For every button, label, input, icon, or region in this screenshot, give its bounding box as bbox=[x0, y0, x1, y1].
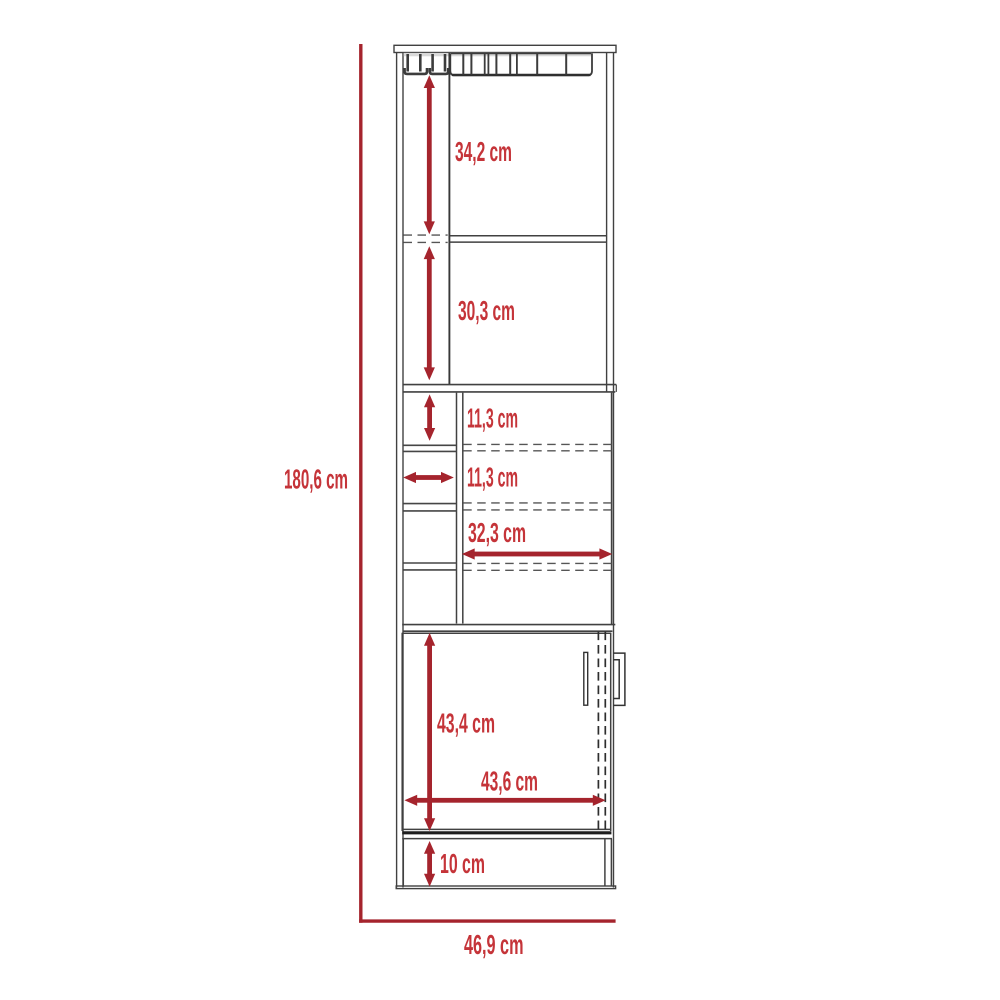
svg-text:32,3 cm: 32,3 cm bbox=[468, 517, 526, 548]
svg-text:43,6 cm: 43,6 cm bbox=[481, 766, 538, 797]
svg-text:43,4 cm: 43,4 cm bbox=[437, 708, 495, 739]
svg-text:30,3 cm: 30,3 cm bbox=[458, 295, 515, 326]
svg-text:180,6 cm: 180,6 cm bbox=[284, 464, 348, 495]
svg-text:46,9 cm: 46,9 cm bbox=[464, 929, 524, 960]
svg-text:10 cm: 10 cm bbox=[440, 848, 485, 879]
svg-text:11,3 cm: 11,3 cm bbox=[467, 402, 518, 433]
svg-text:11,3 cm: 11,3 cm bbox=[467, 462, 518, 493]
svg-text:34,2 cm: 34,2 cm bbox=[455, 136, 512, 167]
